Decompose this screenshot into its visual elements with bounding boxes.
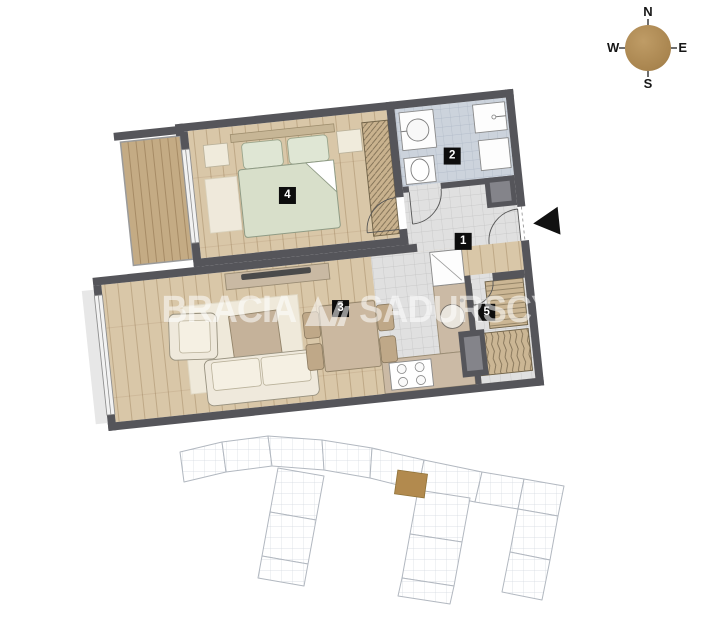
washing-machine	[478, 138, 511, 171]
chair-4	[379, 335, 398, 363]
wall-bath-hall-a	[403, 186, 410, 193]
burner-4	[416, 375, 426, 385]
room-label-2: 2	[444, 148, 461, 165]
building-site-plan	[172, 428, 570, 624]
highlighted-unit	[394, 470, 427, 498]
sofa-cushion-2	[261, 353, 312, 386]
pillow-left	[241, 139, 283, 169]
dining-table	[319, 300, 382, 371]
shaft-hall-inner	[490, 181, 512, 203]
burner-1	[397, 364, 407, 374]
armchair-seat	[179, 320, 211, 353]
compass-rose: N W E S	[606, 4, 690, 92]
bedside-rug	[205, 176, 242, 233]
coffee-table	[229, 310, 283, 360]
compass-north-label: N	[606, 4, 690, 19]
entrance-threshold	[521, 207, 525, 241]
chair-1	[302, 311, 321, 339]
room-label-1: 1	[455, 233, 472, 250]
pillow-right	[287, 135, 329, 165]
burner-2	[415, 362, 425, 372]
building-outline	[180, 436, 564, 604]
room-label-3: 3	[332, 300, 349, 317]
stove	[389, 359, 434, 390]
nightstand-left	[203, 143, 229, 167]
compass-west-label: W	[607, 40, 619, 55]
compass-dial-icon	[625, 25, 671, 71]
wall-living-left-a	[93, 285, 102, 296]
washbasin	[473, 102, 508, 133]
chair-2	[306, 343, 325, 371]
nightstand-right	[337, 129, 363, 153]
compass-east-label: E	[678, 40, 687, 55]
burner-3	[398, 377, 408, 387]
room-label-4: 4	[279, 187, 296, 204]
chair-3	[376, 304, 395, 332]
sofa-cushion-1	[211, 358, 262, 391]
compass-tick-east	[671, 47, 677, 49]
compass-tick-south	[647, 71, 649, 77]
entrance-arrow-icon	[532, 207, 561, 238]
shower-tap	[401, 131, 407, 132]
room-label-5: 5	[478, 304, 495, 321]
compass-south-label: S	[606, 76, 690, 91]
